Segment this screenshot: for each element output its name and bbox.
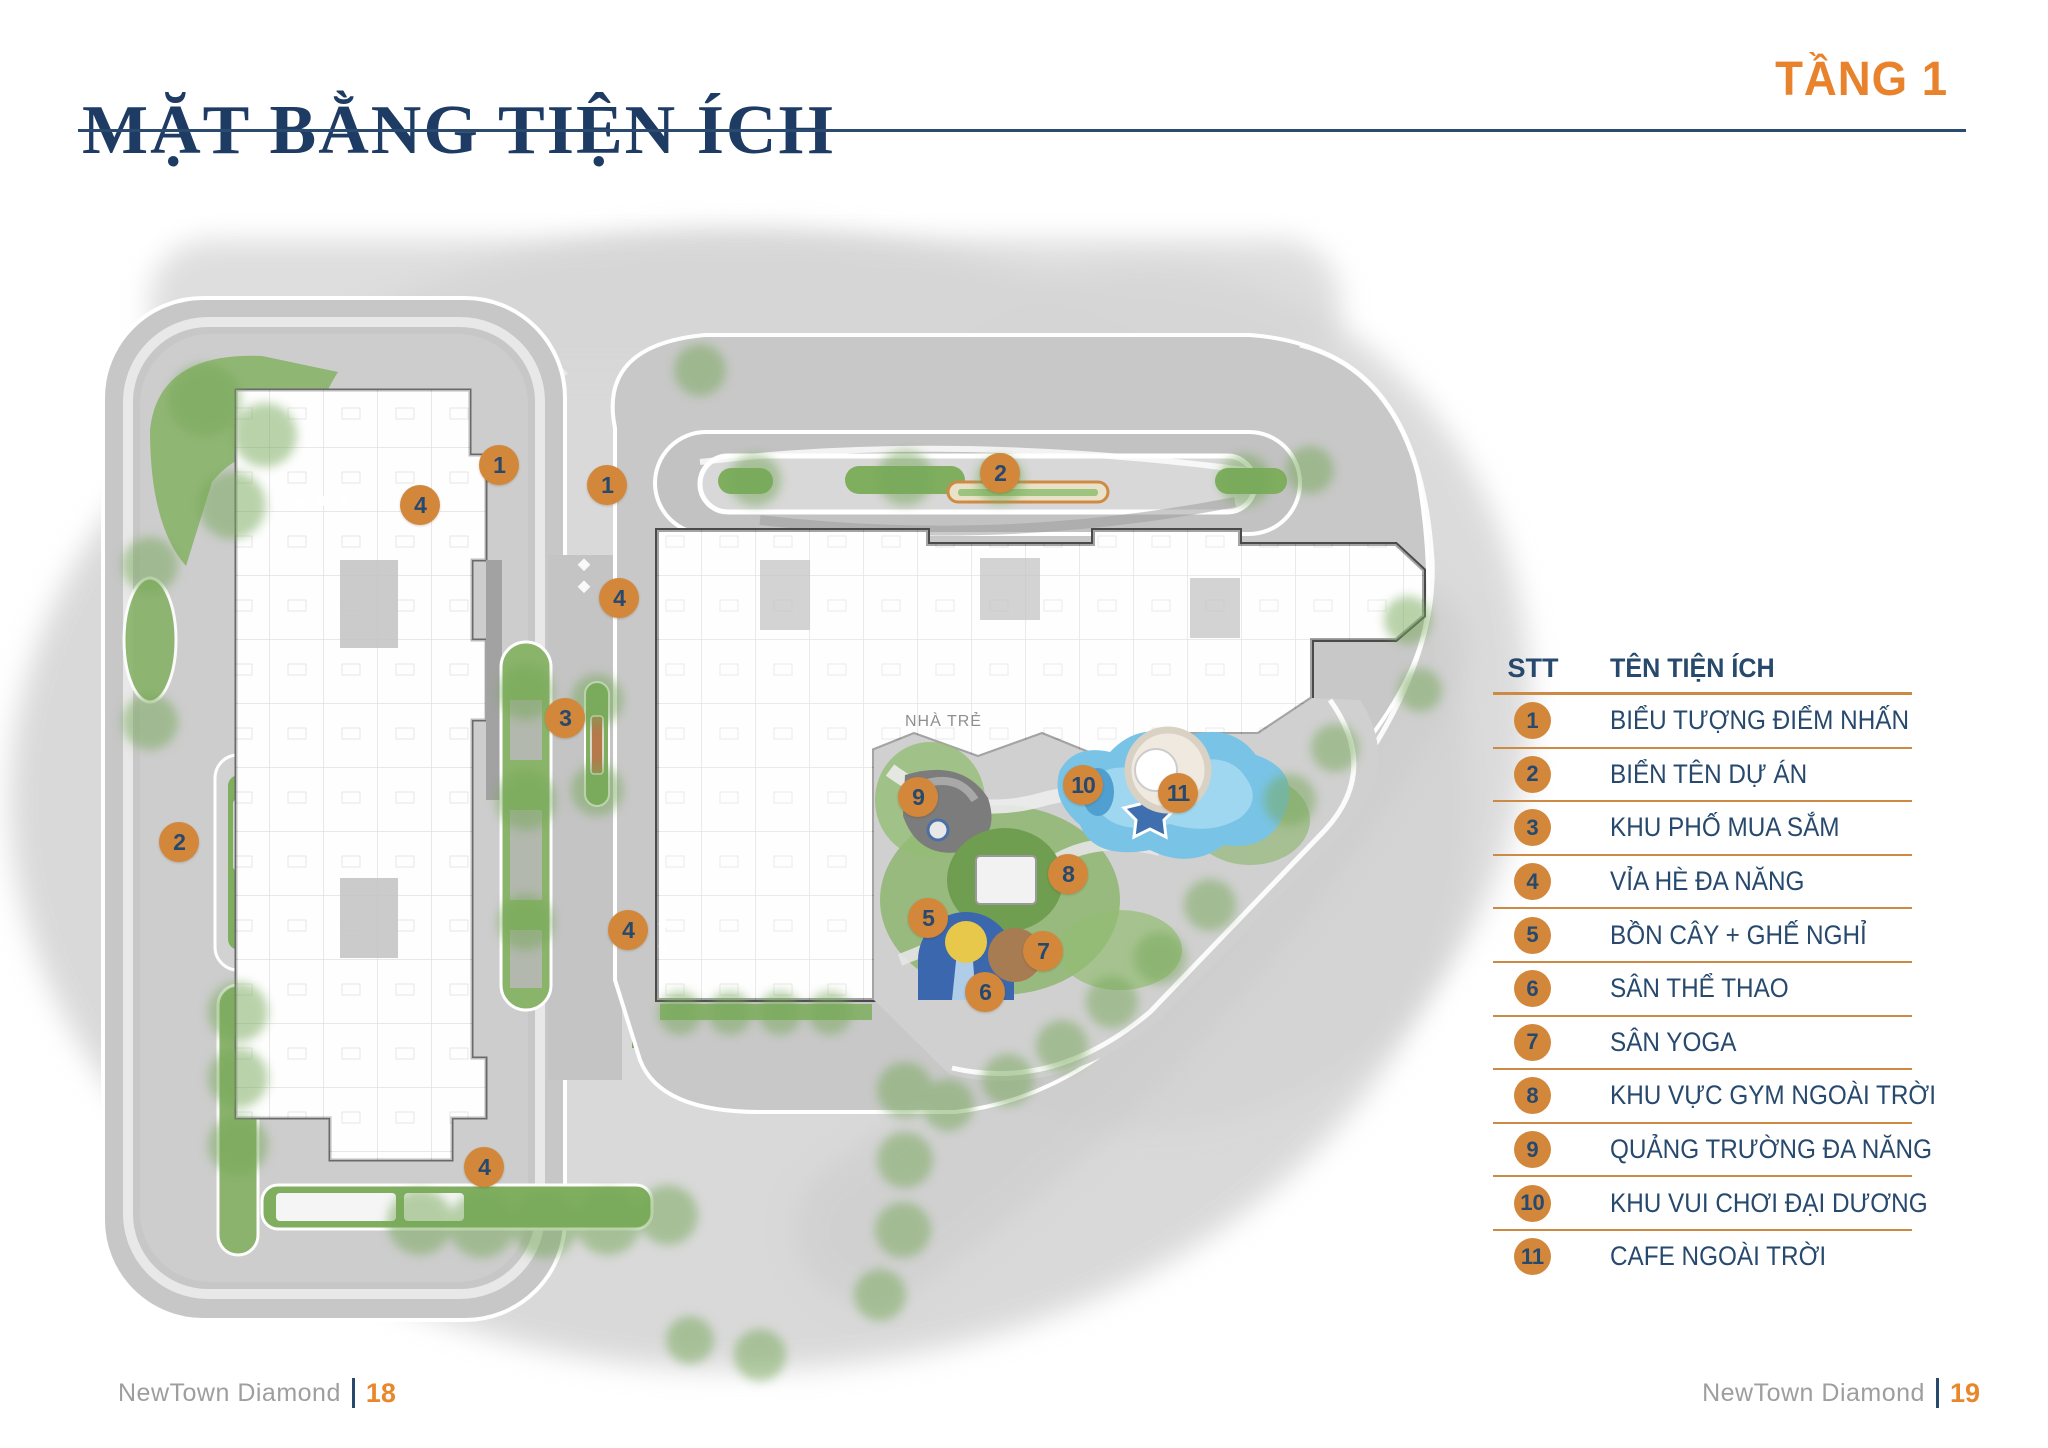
legend-row-11: 11CAFE NGOÀI TRỜI — [1493, 1231, 1912, 1283]
legend-number-badge: 1 — [1514, 702, 1551, 739]
footer-left: NewTown Diamond 18 — [118, 1376, 396, 1410]
plan-marker-2: 2 — [159, 822, 199, 862]
legend-number-badge: 2 — [1514, 756, 1551, 793]
legend-label: KHU PHỐ MUA SẮM — [1610, 812, 1840, 843]
footer-left-brand: NewTown Diamond — [118, 1379, 341, 1408]
plan-marker-8: 8 — [1048, 854, 1088, 894]
legend-row-10: 10KHU VUI CHƠI ĐẠI DƯƠNG — [1493, 1177, 1912, 1231]
legend-header-stt: STT — [1493, 653, 1573, 684]
legend-table: STT TÊN TIỆN ÍCH 1BIỂU TƯỢNG ĐIỂM NHẤN2B… — [1493, 645, 1912, 1283]
footer-left-divider — [352, 1378, 355, 1408]
footer-right-brand: NewTown Diamond — [1702, 1379, 1925, 1408]
legend-number-badge: 8 — [1514, 1077, 1551, 1114]
footer-right: NewTown Diamond 19 — [1702, 1376, 1980, 1410]
plan-marker-11: 11 — [1158, 773, 1198, 813]
legend-row-5: 5BỒN CÂY + GHẾ NGHỈ — [1493, 909, 1912, 963]
legend-number-badge: 4 — [1514, 863, 1551, 900]
legend-label: QUẢNG TRƯỜNG ĐA NĂNG — [1610, 1134, 1932, 1165]
plan-marker-3: 3 — [545, 698, 585, 738]
plan-marker-7: 7 — [1023, 931, 1063, 971]
plan-marker-9: 9 — [898, 777, 938, 817]
plan-marker-5: 5 — [908, 898, 948, 938]
legend-rows: 1BIỂU TƯỢNG ĐIỂM NHẤN2BIỂN TÊN DỰ ÁN3KHU… — [1493, 695, 1912, 1283]
legend-number-badge: 7 — [1514, 1024, 1551, 1061]
legend-number-badge: 6 — [1514, 970, 1551, 1007]
plan-marker-4: 4 — [400, 485, 440, 525]
legend-row-9: 9QUẢNG TRƯỜNG ĐA NĂNG — [1493, 1124, 1912, 1178]
plan-marker-1: 1 — [587, 465, 627, 505]
plan-marker-4: 4 — [599, 578, 639, 618]
plan-marker-6: 6 — [965, 972, 1005, 1012]
legend-row-1: 1BIỂU TƯỢNG ĐIỂM NHẤN — [1493, 695, 1912, 749]
plan-marker-1: 1 — [479, 445, 519, 485]
legend-row-3: 3KHU PHỐ MUA SẮM — [1493, 802, 1912, 856]
legend-label: KHU VỰC GYM NGOÀI TRỜI — [1610, 1080, 1936, 1111]
legend-label: BIỂU TƯỢNG ĐIỂM NHẤN — [1610, 705, 1909, 736]
legend-row-4: 4VỈA HÈ ĐA NĂNG — [1493, 856, 1912, 910]
legend-row-8: 8KHU VỰC GYM NGOÀI TRỜI — [1493, 1070, 1912, 1124]
plan-marker-10: 10 — [1063, 765, 1103, 805]
legend-label: VỈA HÈ ĐA NĂNG — [1610, 866, 1804, 897]
legend-number-badge: 11 — [1514, 1238, 1551, 1275]
legend-number-badge: 5 — [1514, 917, 1551, 954]
legend-row-7: 7SÂN YOGA — [1493, 1017, 1912, 1071]
legend-label: SÂN YOGA — [1610, 1027, 1737, 1058]
legend-label: CAFE NGOÀI TRỜI — [1610, 1241, 1826, 1272]
legend-number-badge: 3 — [1514, 809, 1551, 846]
legend-label: BỒN CÂY + GHẾ NGHỈ — [1610, 920, 1867, 951]
footer-right-divider — [1936, 1378, 1939, 1408]
footer-left-page-number: 18 — [366, 1378, 396, 1409]
legend-row-6: 6SÂN THỂ THAO — [1493, 963, 1912, 1017]
brochure-page: MẶT BẰNG TIỆN ÍCH TẦNG 1 — [0, 0, 2048, 1448]
legend-label: SÂN THỂ THAO — [1610, 973, 1789, 1004]
legend-number-badge: 9 — [1514, 1131, 1551, 1168]
building-label: NHÀ TRẺ — [905, 711, 982, 730]
plan-marker-2: 2 — [980, 453, 1020, 493]
plan-marker-4: 4 — [464, 1147, 504, 1187]
legend-label: KHU VUI CHƠI ĐẠI DƯƠNG — [1610, 1188, 1928, 1219]
legend-row-2: 2BIỂN TÊN DỰ ÁN — [1493, 749, 1912, 803]
legend-label: BIỂN TÊN DỰ ÁN — [1610, 759, 1807, 790]
legend-number-badge: 10 — [1514, 1185, 1551, 1222]
plan-marker-4: 4 — [608, 910, 648, 950]
legend-header-name: TÊN TIỆN ÍCH — [1610, 653, 1775, 684]
footer-right-page-number: 19 — [1950, 1378, 1980, 1409]
legend-header: STT TÊN TIỆN ÍCH — [1493, 645, 1912, 695]
building-a — [236, 390, 502, 1160]
